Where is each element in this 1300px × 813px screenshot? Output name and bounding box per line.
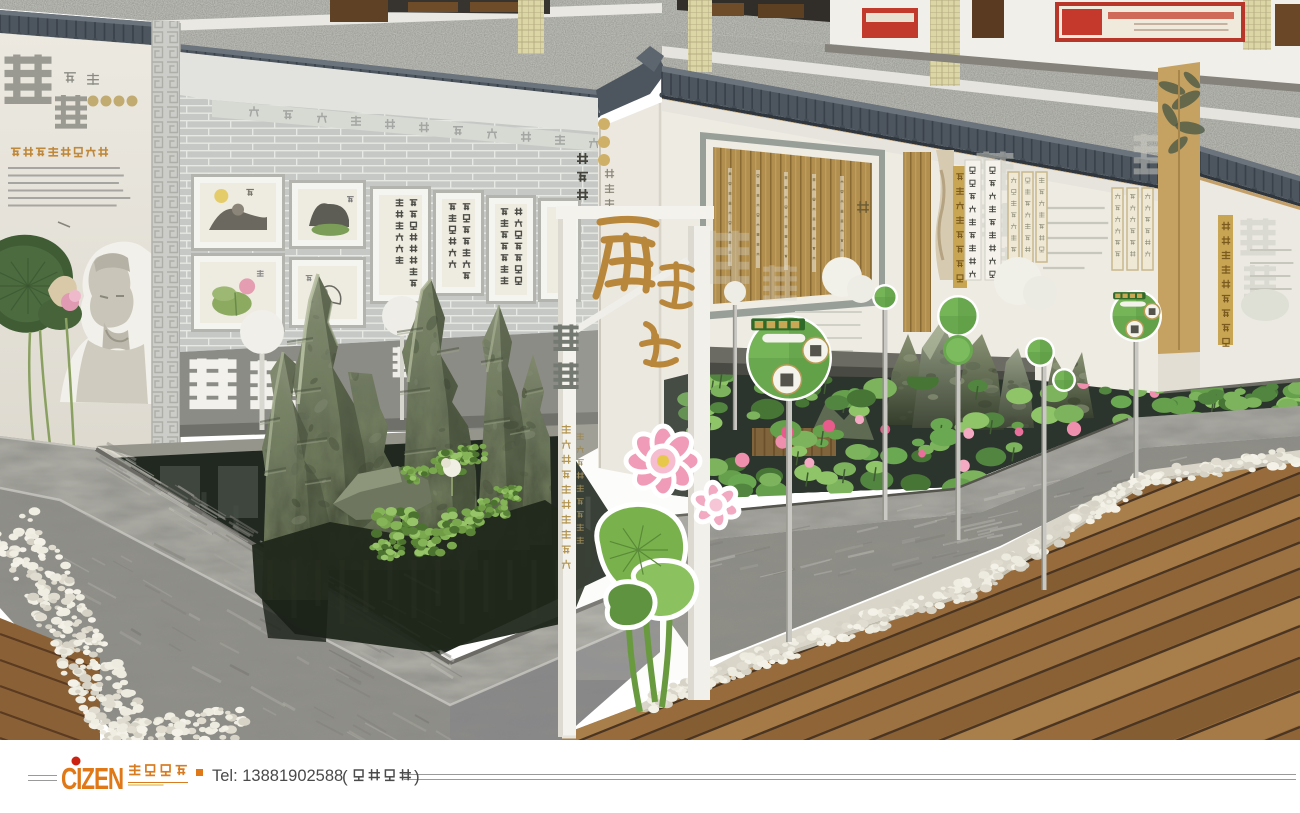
svg-text:): ) — [414, 767, 420, 786]
svg-text:(: ( — [342, 767, 348, 786]
svg-text:CIZEN: CIZEN — [61, 761, 123, 796]
svg-text:Tel: 13881902588: Tel: 13881902588 — [212, 767, 343, 785]
